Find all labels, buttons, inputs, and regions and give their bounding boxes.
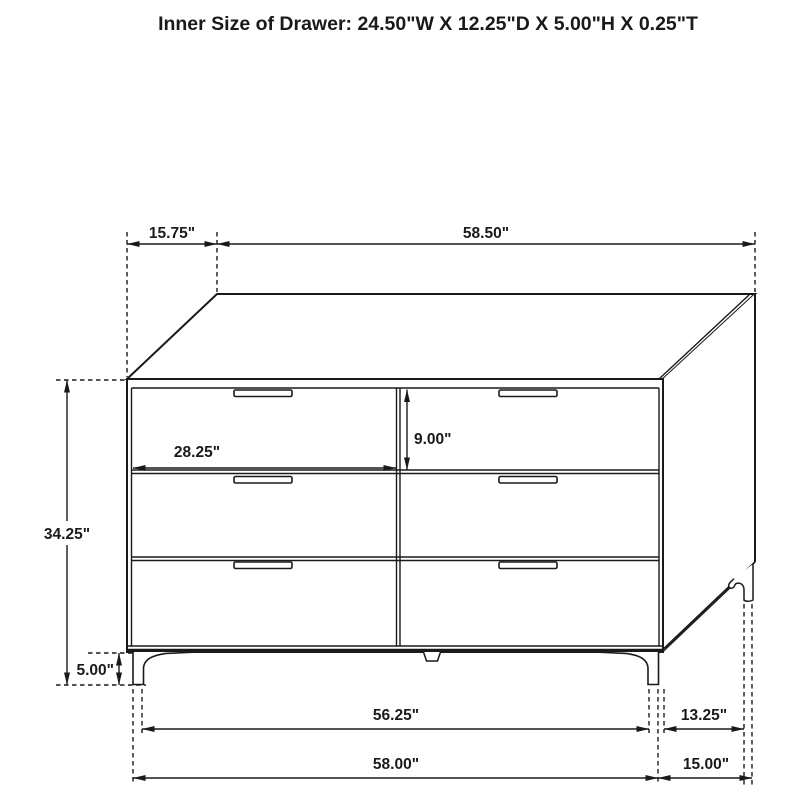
dresser-drawing — [127, 294, 755, 685]
dim-leg-depth-span: 13.25" — [664, 689, 744, 733]
dim-feet-span: 56.25" — [142, 689, 649, 733]
center-support-foot — [424, 652, 441, 661]
dim-label-leg-depth-span: 13.25" — [681, 707, 727, 724]
drawer-handle — [499, 390, 557, 397]
dim-leg-height: 5.00" — [76, 653, 136, 685]
dim-label-drawer-width: 28.25" — [174, 444, 220, 461]
dim-label-top-depth: 15.75" — [149, 225, 195, 242]
drawer-handle — [234, 390, 292, 397]
dim-label-top-width: 58.50" — [463, 225, 509, 242]
drawer-handle — [234, 477, 292, 484]
drawer-handle — [499, 477, 557, 484]
dim-label-leg-height: 5.00" — [76, 662, 114, 679]
page-title: Inner Size of Drawer: 24.50"W X 12.25"D … — [158, 13, 698, 35]
dim-label-overall-width: 58.00" — [373, 756, 419, 773]
dim-overall-width: 58.00" — [133, 689, 658, 783]
dim-label-drawer-height: 9.00" — [414, 431, 452, 448]
dim-top-width: 58.50" — [217, 225, 755, 292]
dresser-top-face — [127, 294, 755, 379]
dim-label-depth: 15.00" — [683, 756, 729, 773]
diagram-canvas: Inner Size of Drawer: 24.50"W X 12.25"D … — [0, 0, 800, 800]
front-face — [127, 379, 663, 652]
front-right-leg — [594, 652, 659, 685]
dim-label-height: 34.25" — [44, 526, 90, 543]
drawer-handle — [499, 562, 557, 569]
dresser-dimension-diagram: Inner Size of Drawer: 24.50"W X 12.25"D … — [0, 0, 800, 800]
front-left-leg — [133, 652, 198, 685]
drawer-handle — [234, 562, 292, 569]
dim-label-feet-span: 56.25" — [373, 707, 419, 724]
